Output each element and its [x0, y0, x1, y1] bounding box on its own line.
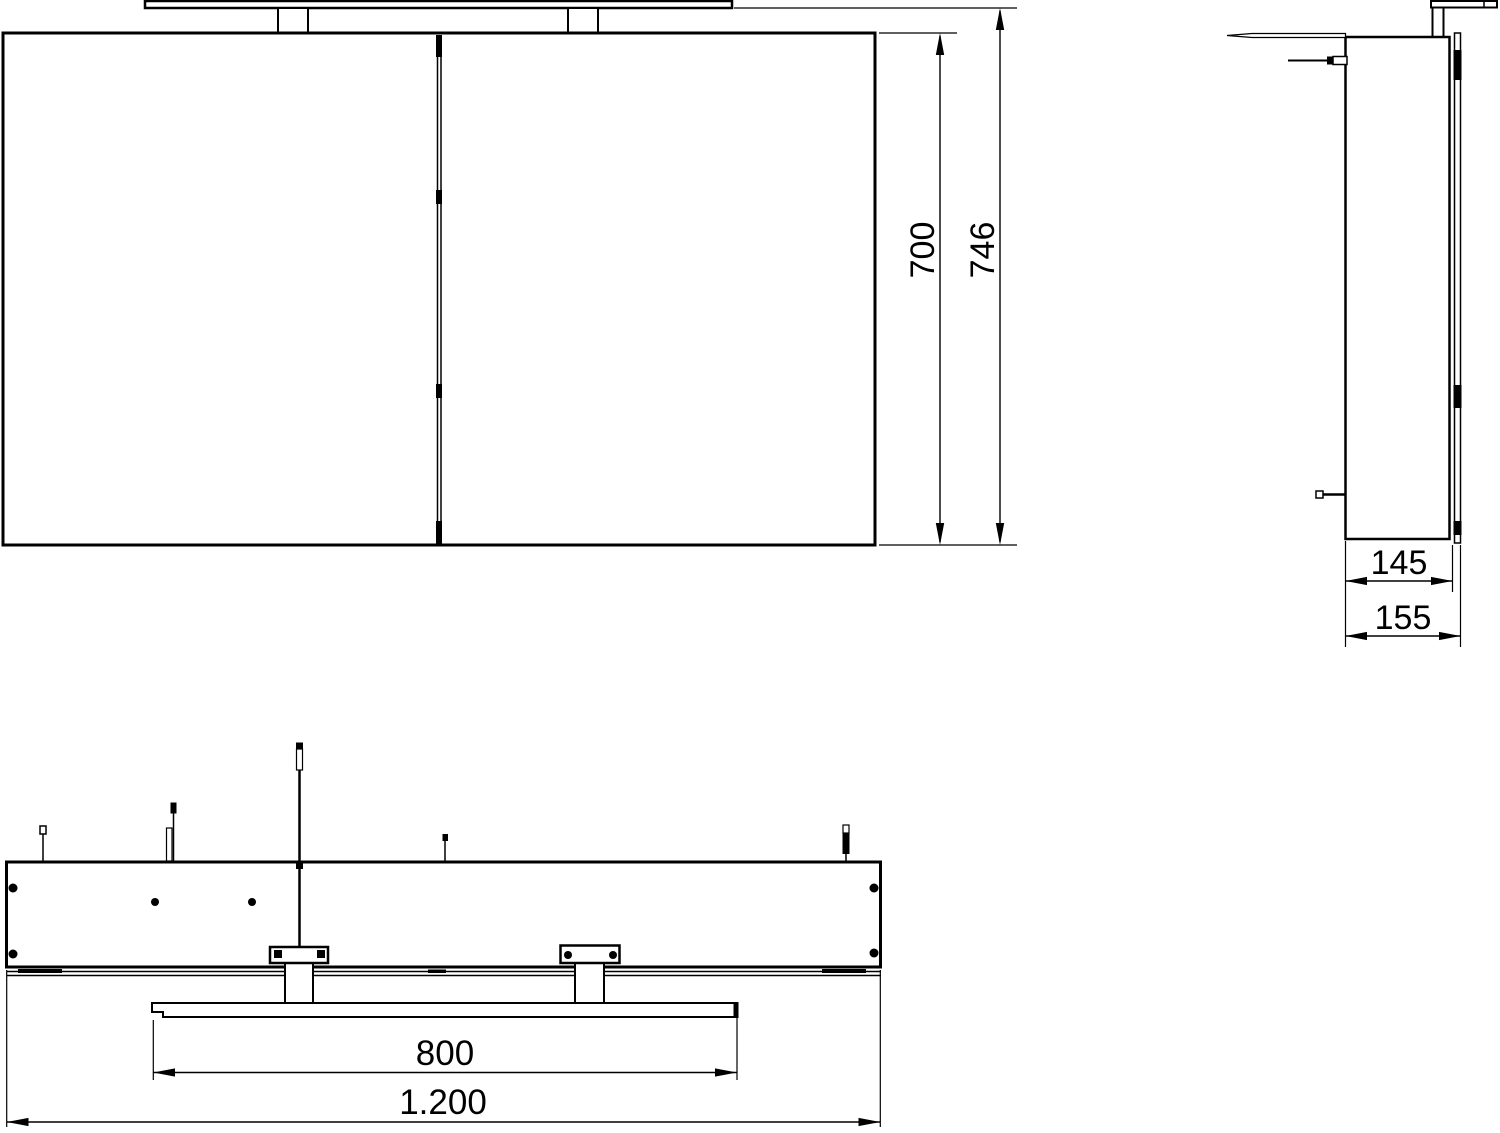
arrowhead-down [936, 523, 944, 545]
anchor-screw [443, 834, 449, 862]
divider-hinge-mark [436, 521, 442, 544]
light-bar-outline [145, 1, 732, 8]
arrowhead-left [1346, 577, 1368, 585]
upper-mount-screw [1288, 57, 1347, 65]
anchor-screw [40, 826, 46, 862]
dimension-800: 800 [153, 1017, 737, 1080]
arrowhead-down [996, 523, 1004, 545]
dimension-label-1200: 1.200 [399, 1083, 487, 1122]
arrowhead-left [153, 1068, 175, 1076]
light-bar-stem-right [568, 8, 598, 34]
door-edge-mark [822, 969, 866, 973]
dimension-label-800: 800 [416, 1034, 474, 1073]
light-bar-plan [152, 1003, 738, 1017]
arrowhead-right [715, 1068, 737, 1076]
cabinet-front-outline [3, 33, 875, 545]
mirror-cabinet-drawing: 700 746 [0, 0, 1500, 1133]
dimension-700: 700 [879, 33, 957, 545]
front-view [3, 1, 875, 545]
dimension-label-700: 700 [904, 222, 942, 279]
arrowhead-right [1439, 632, 1461, 640]
arrowhead-left [1346, 632, 1368, 640]
wall-mount-rail [1227, 34, 1346, 38]
door-edge-mark [18, 969, 62, 973]
light-bar-stem-left [278, 8, 308, 34]
arrowhead-up [936, 33, 944, 55]
divider-hinge-mark [436, 190, 442, 204]
light-bar-front [145, 1, 732, 34]
anchor-screw [843, 825, 850, 862]
divider-hinge-mark [436, 35, 442, 57]
door-hinge-mark [1454, 385, 1462, 408]
bottom-view [7, 743, 882, 1018]
light-fixture-side [1431, 1, 1497, 37]
mirror-front-edge [7, 969, 882, 976]
arrowhead-up [996, 8, 1004, 30]
door-edge-mark [428, 970, 446, 974]
lower-mount-screw [1316, 491, 1346, 498]
arrowhead-right [1431, 577, 1453, 585]
door-hinge-mark [1454, 50, 1462, 80]
side-view [1227, 1, 1497, 543]
divider-hinge-mark [436, 384, 442, 398]
cabinet-plan-outline [7, 862, 881, 967]
cabinet-side-outline [1346, 37, 1450, 539]
anchor-screw [167, 803, 177, 863]
arrowhead-right [859, 1118, 881, 1126]
door-hinge-mark [1454, 521, 1462, 535]
arrowhead-left [7, 1118, 29, 1126]
technical-drawing-canvas: 700 746 [0, 0, 1500, 1133]
dimension-label-155: 155 [1375, 599, 1432, 637]
mirror-door-side [1454, 33, 1462, 543]
dimension-label-746: 746 [964, 222, 1002, 279]
dimension-label-145: 145 [1371, 544, 1428, 582]
light-bar-end-cap [734, 1003, 738, 1017]
lamp-stem-side [1433, 8, 1444, 38]
